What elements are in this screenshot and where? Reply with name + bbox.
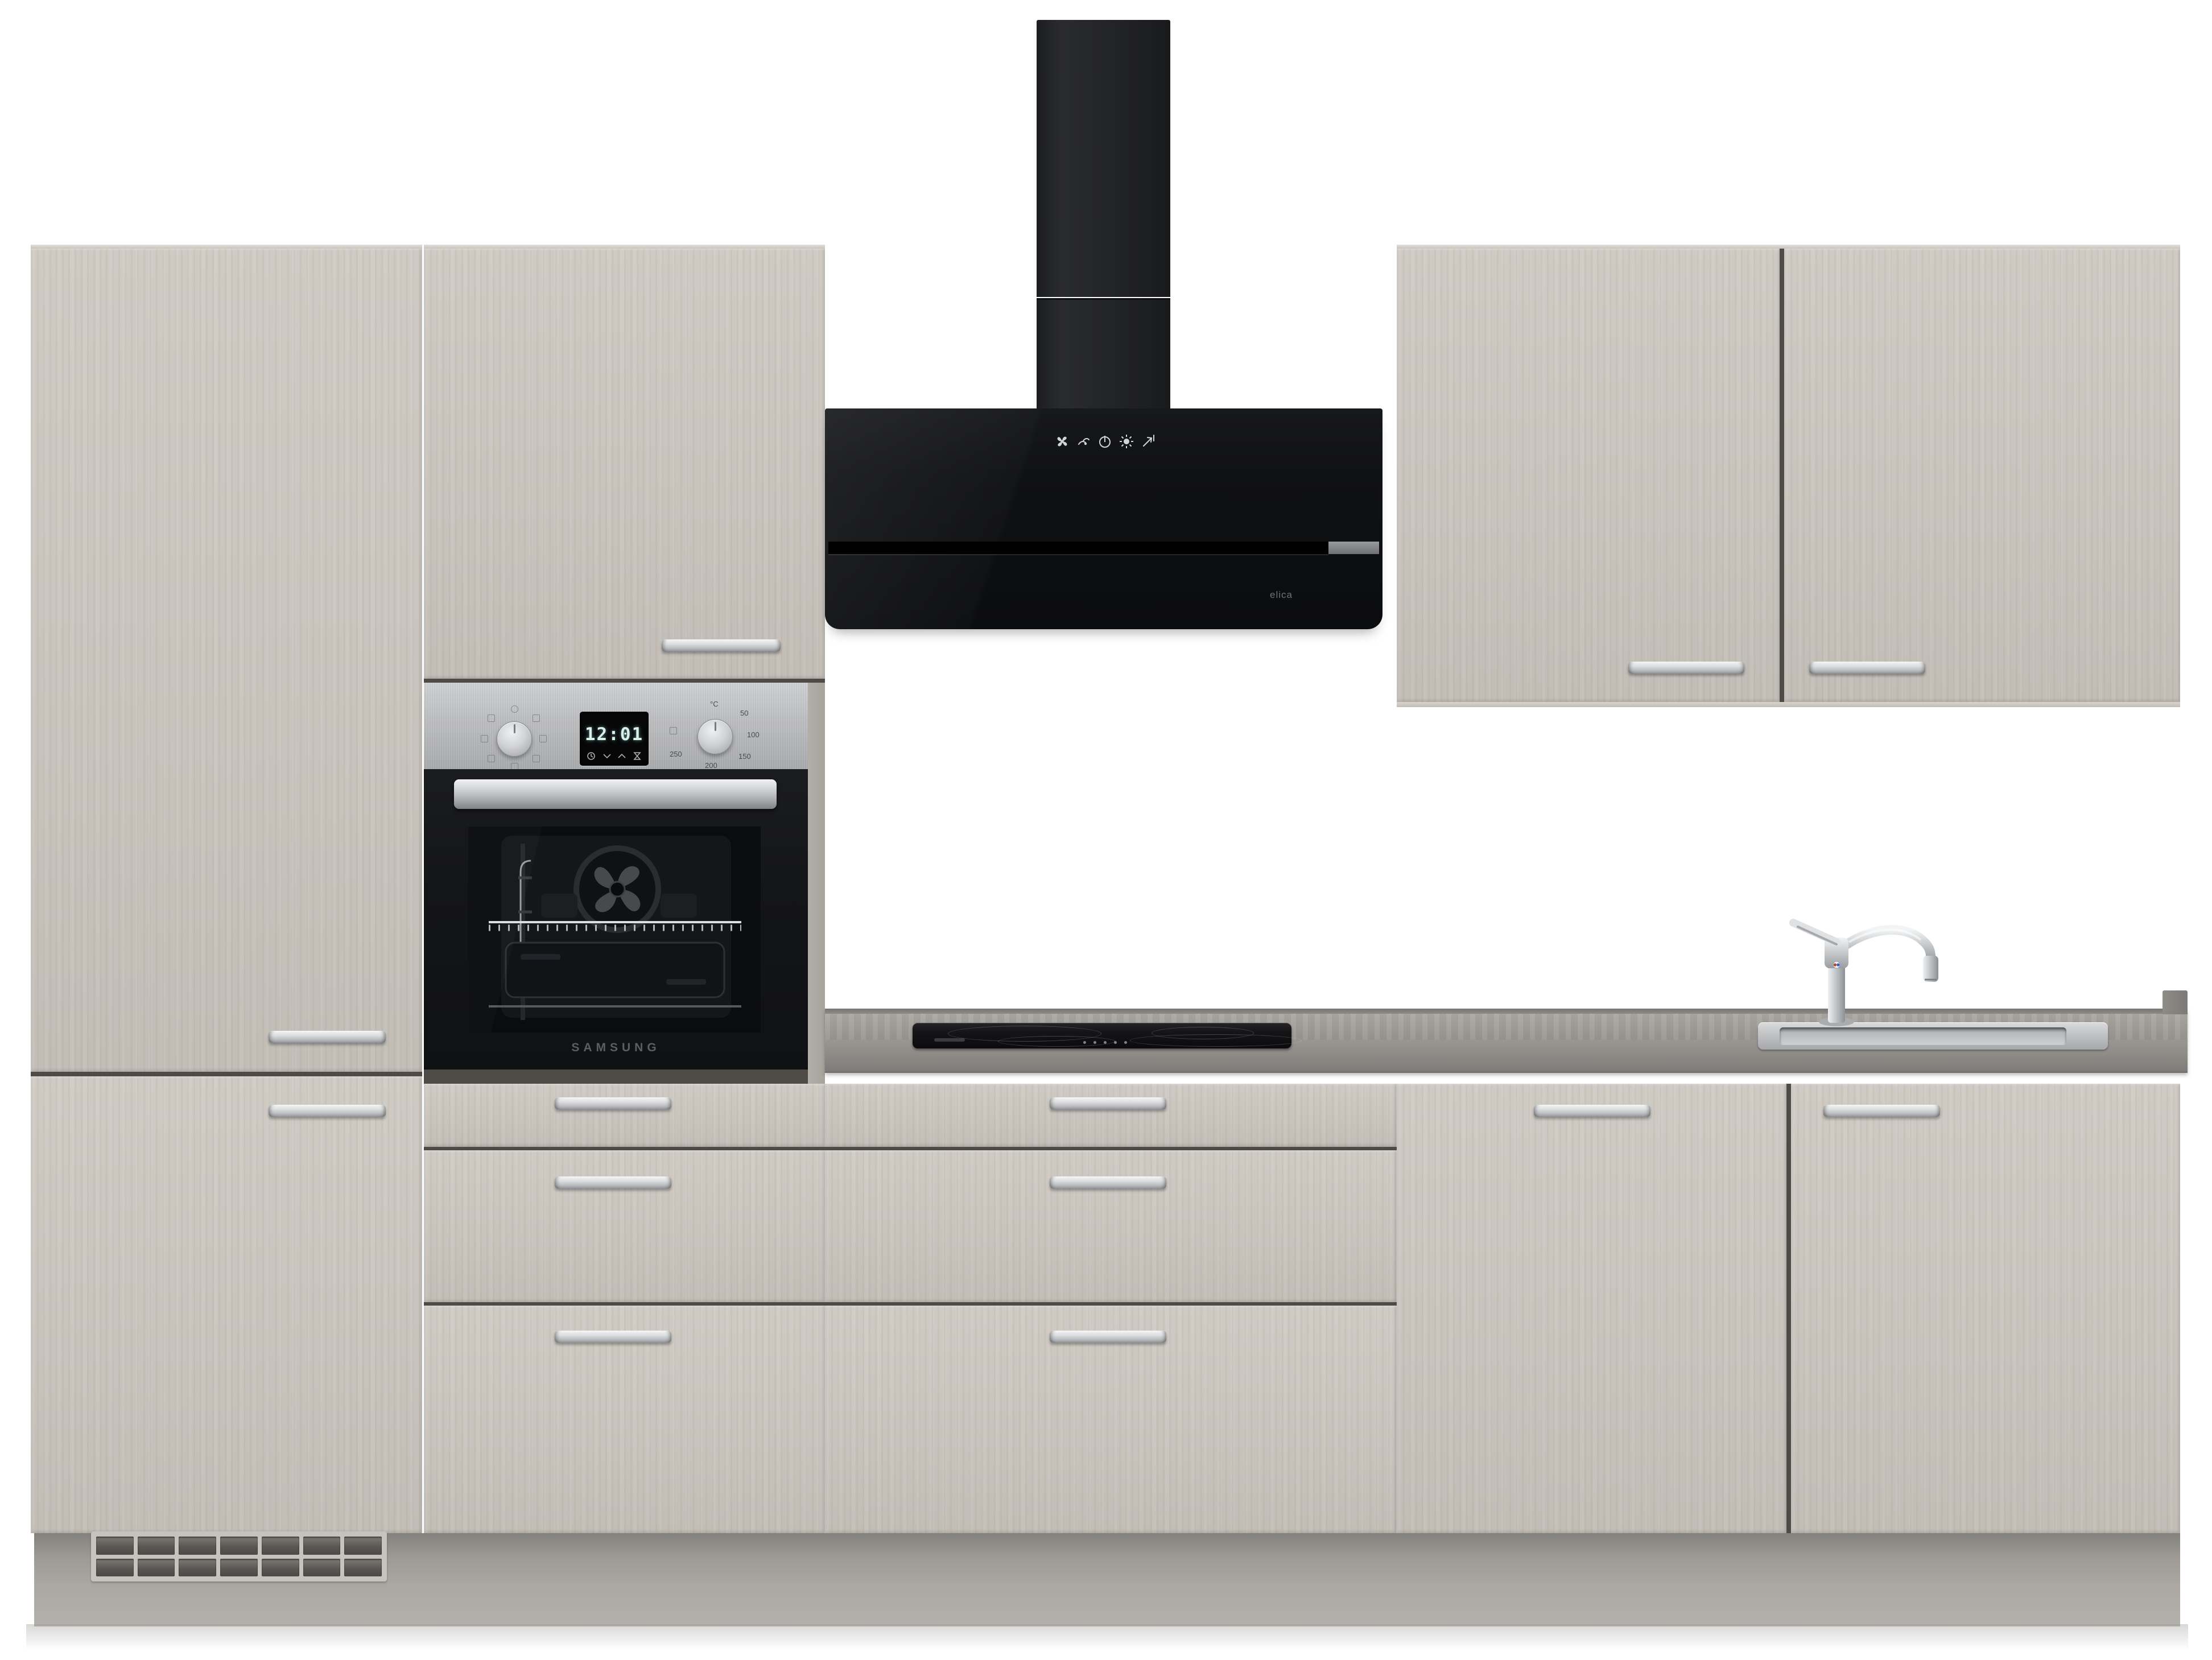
tower-drawer-2-handle[interactable]: [555, 1176, 671, 1188]
base-right-door-handle[interactable]: [1823, 1105, 1940, 1117]
tall-lower-door-handle[interactable]: [269, 1105, 386, 1117]
grille-slot: [303, 1537, 341, 1555]
tower-drawer-1[interactable]: [424, 1084, 825, 1147]
cabinet-top-edge: [31, 245, 422, 249]
right-base-cabinets: [1397, 1084, 2180, 1533]
hood-chimney-lower: [1037, 298, 1170, 411]
wall-right-door-handle[interactable]: [1809, 662, 1925, 674]
left-tall-cabinet: [31, 245, 422, 1533]
hob-touch-control[interactable]: [1093, 1041, 1096, 1044]
oven-door-handle[interactable]: [454, 779, 777, 809]
oven-brand-logo: SAMSUNG: [424, 1041, 808, 1055]
defrost-mark: [670, 727, 677, 734]
kitchen-product-render: 12:01 °C 50 100 150 200 250: [0, 0, 2212, 1660]
speed-icon[interactable]: [1075, 434, 1092, 451]
wall-left-door-handle[interactable]: [1628, 662, 1744, 674]
center-drawer-3-handle[interactable]: [1050, 1331, 1166, 1343]
oven-side-filler: [808, 683, 825, 1084]
hot-indicator: [1834, 963, 1837, 966]
chevron-up-icon: [618, 754, 625, 758]
clock-icon: [591, 754, 593, 757]
cabinet-top-edge: [1397, 245, 2180, 249]
temp-tick-250: 250: [670, 750, 682, 758]
cooktop: [913, 1023, 1291, 1048]
temp-tick-100: 100: [747, 730, 760, 739]
faucet-spout: [1847, 930, 1931, 960]
center-drawer-2-handle[interactable]: [1050, 1176, 1166, 1188]
cooking-zone: [1130, 1034, 1302, 1047]
grille-slot: [262, 1537, 299, 1555]
grille-slot: [179, 1559, 216, 1577]
temp-tick-150: 150: [738, 752, 751, 761]
oven-mode-mark: [539, 735, 547, 742]
oven-clock: 12:01: [580, 724, 649, 745]
hourglass-icon: [634, 753, 640, 759]
center-drawer-1-handle[interactable]: [1050, 1097, 1166, 1109]
oven-mode-knob[interactable]: [497, 721, 532, 757]
oven-control-panel: 12:01 °C 50 100 150 200 250: [424, 683, 808, 770]
oven-mode-mark: [533, 755, 540, 762]
tower-drawer-2[interactable]: [424, 1150, 825, 1302]
tall-cabinet-upper-door[interactable]: [31, 249, 422, 1072]
cooking-zone: [998, 1036, 1115, 1047]
tower-top-door[interactable]: [424, 249, 825, 679]
ventilation-grille: [91, 1531, 387, 1581]
tower-drawer-1-handle[interactable]: [555, 1097, 671, 1109]
center-base-drawers: [825, 1084, 1397, 1533]
temp-tick-200: 200: [705, 761, 717, 770]
grille-slot: [220, 1559, 258, 1577]
oven-mode-mark: [511, 705, 518, 713]
oven-temp-knob[interactable]: [698, 719, 733, 754]
wall-cabinet-bottom-panel: [1397, 702, 2180, 707]
grille-slot: [138, 1537, 175, 1555]
oven-display: 12:01: [580, 712, 649, 766]
cabinet-top-edge: [424, 245, 825, 249]
hood-slit-endcap: [1328, 542, 1379, 554]
base-right-door[interactable]: [1791, 1084, 2180, 1533]
floor-shadow: [26, 1624, 2188, 1650]
tall-cabinet-lower-door[interactable]: [31, 1076, 422, 1533]
sink: [1758, 1022, 2108, 1050]
hood-brand-logo: elica: [1270, 589, 1293, 601]
tall-upper-door-handle[interactable]: [269, 1031, 386, 1043]
center-drawer-2[interactable]: [825, 1150, 1397, 1302]
grille-slot: [344, 1559, 382, 1577]
grille-slot: [138, 1559, 175, 1577]
base-left-door-handle[interactable]: [1534, 1105, 1650, 1117]
cooktop-brand-mark: [934, 1038, 965, 1042]
grille-slot: [220, 1537, 258, 1555]
center-drawer-1[interactable]: [825, 1084, 1397, 1147]
extractor-hood: elica: [825, 408, 1383, 629]
faucet-aerator: [1923, 956, 1938, 982]
wall-cabinet-left-door[interactable]: [1397, 249, 1780, 702]
hob-touch-control[interactable]: [1124, 1041, 1127, 1044]
light-icon[interactable]: [1118, 433, 1135, 450]
tower-top-door-handle[interactable]: [662, 639, 781, 651]
oven-door[interactable]: SAMSUNG: [424, 769, 808, 1069]
sink-basin: [1780, 1027, 2066, 1045]
worktop-back-edge: [825, 1009, 2188, 1014]
wall-cabinet-right-door[interactable]: [1784, 249, 2180, 702]
grille-slot: [179, 1537, 216, 1555]
worktop-side-upstand: [2163, 990, 2188, 1014]
base-left-door[interactable]: [1397, 1084, 1786, 1533]
grille-slot: [96, 1559, 134, 1577]
oven-mode-mark: [488, 715, 495, 722]
temp-unit-label: °C: [710, 700, 719, 708]
oven-mode-mark: [481, 735, 488, 742]
faucet-lever: [1793, 923, 1837, 942]
grille-slot: [262, 1559, 299, 1577]
hood-chimney-upper: [1037, 20, 1170, 297]
grille-slot: [303, 1559, 341, 1577]
built-in-oven: 12:01 °C 50 100 150 200 250: [424, 683, 808, 1069]
grille-slot: [344, 1537, 382, 1555]
oven-interior: [468, 827, 761, 1033]
hob-touch-control[interactable]: [1083, 1041, 1086, 1044]
fan-icon[interactable]: [1054, 433, 1071, 450]
filter-arrow-icon[interactable]: [1140, 433, 1157, 450]
oven-mode-mark: [533, 715, 540, 722]
hob-touch-control[interactable]: [1114, 1041, 1117, 1044]
cold-indicator: [1837, 963, 1839, 966]
oven-display-buttons[interactable]: [587, 750, 642, 762]
faucet[interactable]: [1764, 909, 1951, 1026]
power-icon[interactable]: [1096, 433, 1113, 450]
chevron-down-icon: [604, 754, 610, 758]
right-wall-cabinets: [1397, 245, 2180, 707]
oven-window: [468, 827, 761, 1033]
oven-mode-mark: [488, 755, 495, 762]
temp-tick-50: 50: [740, 709, 748, 717]
hood-glass-slit: [828, 542, 1328, 554]
hob-touch-control[interactable]: [1104, 1041, 1107, 1044]
grille-slot: [96, 1537, 134, 1555]
tower-drawer-3-handle[interactable]: [555, 1331, 671, 1343]
